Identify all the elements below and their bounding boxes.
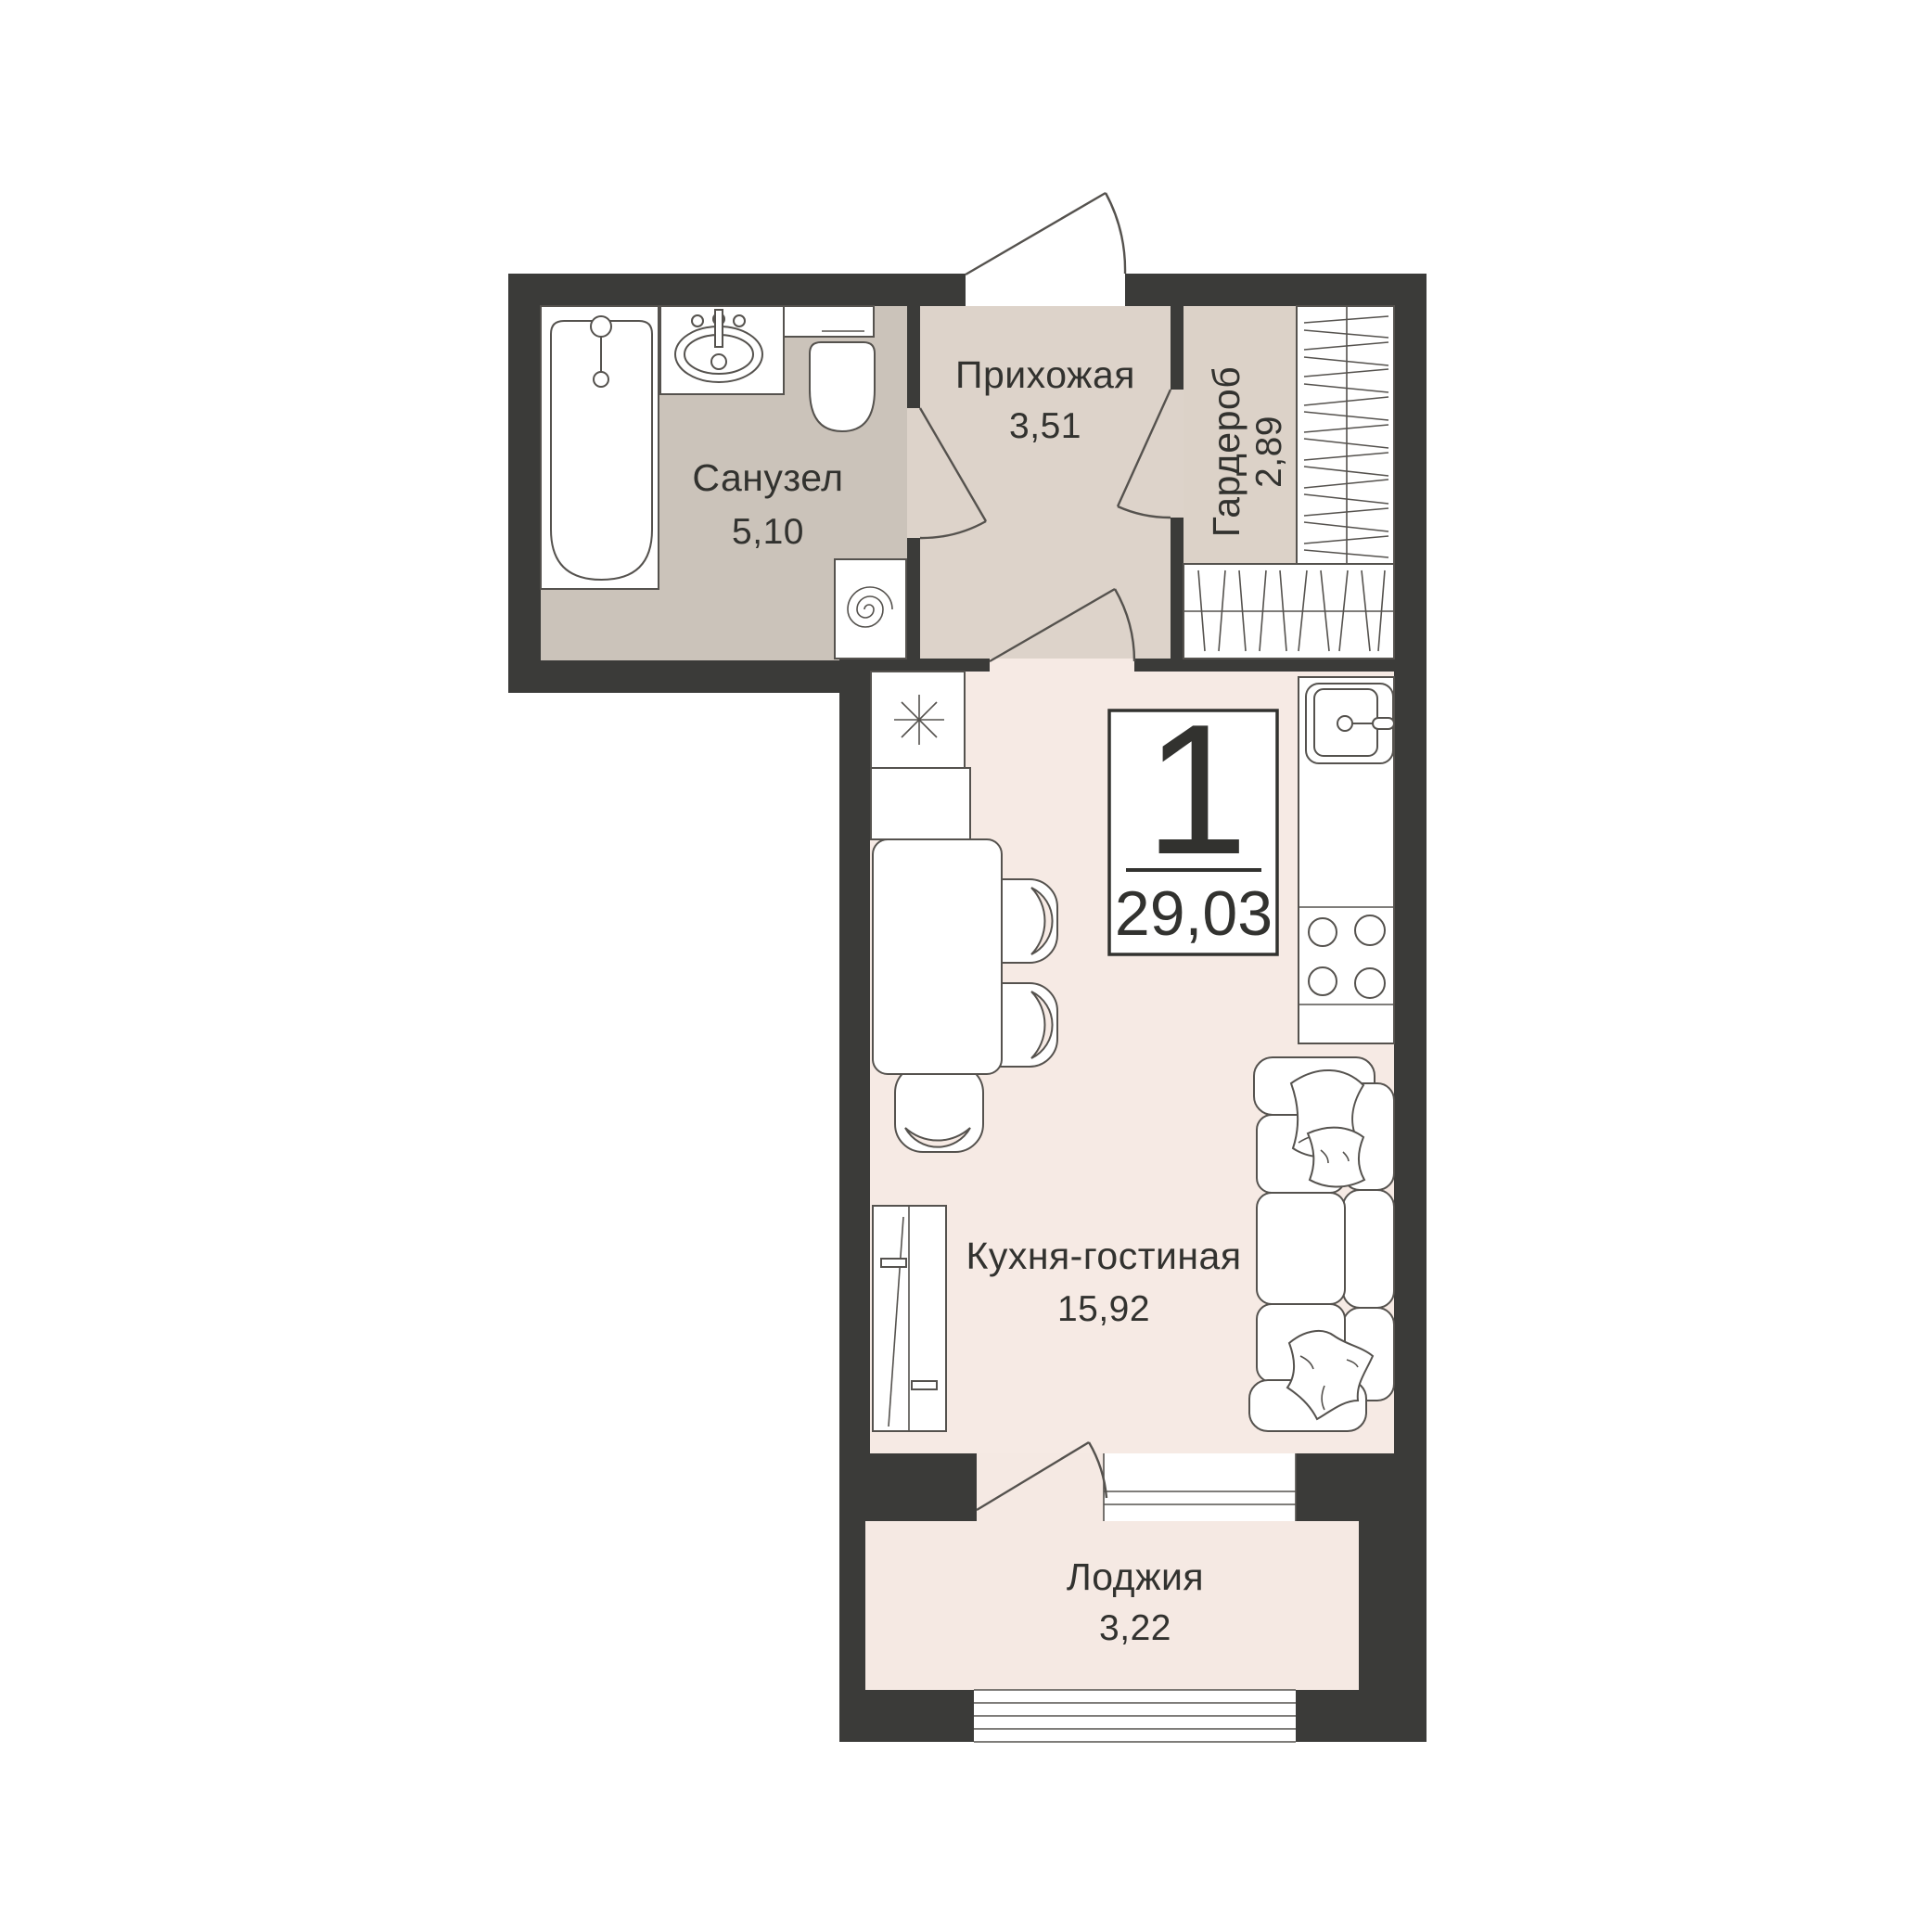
room-area-hallway: 3,51 <box>1009 406 1081 446</box>
living-bottom-left-block <box>865 1453 977 1521</box>
sofa-seat-2 <box>1257 1193 1345 1304</box>
kitchen-band-right <box>1134 659 1394 672</box>
total-area: 29,03 <box>1115 878 1273 949</box>
room-label-wardrobe: Гардероб <box>1205 366 1247 537</box>
bath-hall-wall-upper <box>907 306 920 408</box>
room-area-bathroom: 5,10 <box>732 512 804 552</box>
fridge-snowflake-icon <box>894 695 944 745</box>
left-wall <box>508 274 541 693</box>
kitchen-right-units <box>1299 677 1394 1043</box>
sofa-back-2 <box>1343 1190 1394 1308</box>
kitchen-door-threshold <box>990 659 1134 672</box>
bathroom-door-threshold <box>907 408 920 538</box>
kitchen-counter-left <box>871 768 970 839</box>
room-label-bathroom: Санузел <box>692 456 843 499</box>
floor-plan: 1 29,03 Санузел 5,10 Прихожая 3,51 Гарде… <box>0 0 1932 1932</box>
loggia-floor <box>865 1521 1359 1690</box>
floor-plan-page: 1 29,03 Санузел 5,10 Прихожая 3,51 Гарде… <box>0 0 1932 1932</box>
tv-cabinet <box>873 1206 946 1431</box>
room-count: 1 <box>1145 686 1247 893</box>
bathroom-bottom-wall <box>508 660 870 693</box>
top-wall-left <box>508 274 966 306</box>
room-area-kitchen-living: 15,92 <box>1057 1289 1150 1329</box>
apartment-info-box: 1 29,03 <box>1109 686 1277 954</box>
loggia-left-wall <box>839 1521 865 1690</box>
room-area-loggia: 3,22 <box>1099 1608 1171 1648</box>
room-label-loggia: Лоджия <box>1067 1555 1204 1598</box>
hall-ward-wall-upper <box>1171 306 1184 390</box>
loggia-bottom-right-block <box>1296 1690 1427 1742</box>
top-wall-right <box>1125 274 1427 306</box>
sofa-pillow-small <box>1308 1128 1364 1187</box>
loggia-bottom-left-block <box>839 1690 974 1742</box>
entrance-door <box>966 193 1125 275</box>
bath-hall-wall-lower <box>907 538 920 660</box>
chair-3 <box>895 1065 983 1152</box>
dining-table <box>873 839 1002 1074</box>
kitchen-band-left <box>870 659 990 672</box>
right-wall <box>1394 274 1427 1453</box>
room-label-kitchen-living: Кухня-гостиная <box>966 1235 1241 1277</box>
living-bottom-right-block <box>1296 1453 1427 1521</box>
washing-machine-icon <box>835 559 906 659</box>
room-area-wardrobe: 2,89 <box>1249 416 1289 488</box>
loggia-glazing <box>974 1690 1296 1742</box>
kitchen-sink-icon <box>1306 684 1394 763</box>
corner-sofa <box>1249 1057 1394 1431</box>
wardrobe-rail-right <box>1297 306 1394 564</box>
room-label-hallway: Прихожая <box>955 353 1135 396</box>
entrance-threshold <box>966 274 1125 306</box>
kitchen-left-wall <box>839 659 870 1521</box>
loggia-door-threshold <box>977 1453 1104 1521</box>
hall-ward-wall-lower <box>1171 518 1184 660</box>
wardrobe-door-threshold <box>1171 390 1184 518</box>
living-room-window <box>1104 1453 1296 1521</box>
